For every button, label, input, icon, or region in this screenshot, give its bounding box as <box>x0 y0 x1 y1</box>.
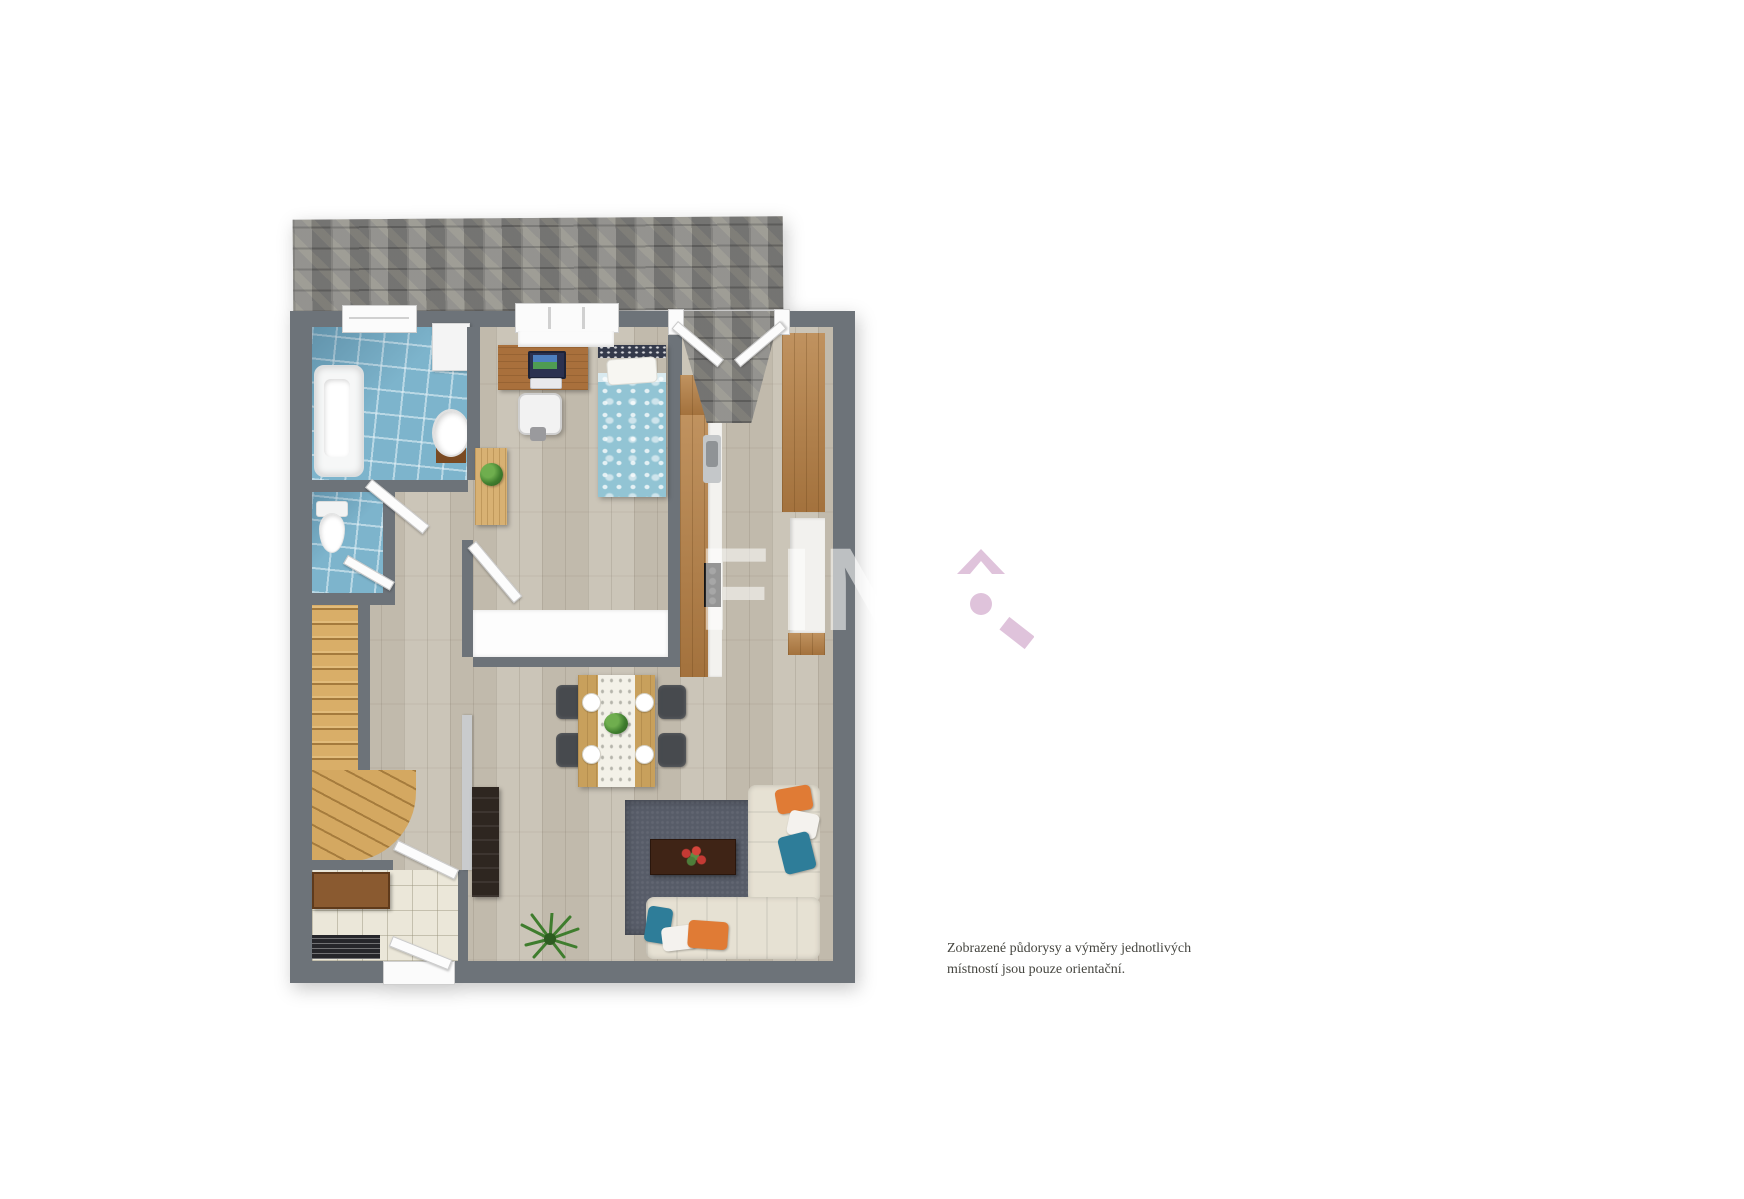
bathroom-cabinet <box>432 323 470 371</box>
bedroom-window <box>515 303 619 333</box>
dining-centerpiece <box>604 713 628 734</box>
dining-plate-3 <box>635 693 654 712</box>
bathroom-window-mullion <box>349 317 409 319</box>
wall-stairs-right <box>358 605 370 770</box>
outer-wall-bottom <box>290 961 855 983</box>
chevron-up-icon <box>957 549 1005 574</box>
disclaimer-line-1: Zobrazené půdorysy a výměry jednotlivých <box>947 938 1207 959</box>
dining-chair-3 <box>658 685 686 719</box>
staircase <box>312 605 358 775</box>
wall-hall-dining <box>462 540 473 657</box>
kitchen-sink <box>703 435 721 483</box>
wall-under-stairs <box>312 860 393 870</box>
dining-plate-2 <box>582 745 601 764</box>
pillow-orange-2 <box>687 920 729 951</box>
outer-wall-left <box>290 311 312 983</box>
brand-logo <box>950 542 1034 650</box>
sink-bowl <box>706 441 718 467</box>
desk-chair-base <box>530 427 546 441</box>
disclaimer-line-2: místností jsou pouze orientační. <box>947 959 1207 980</box>
bed-duvet <box>598 373 666 497</box>
bathroom-window <box>342 305 417 333</box>
page-canvas: FIN Zobrazené půdorysy a výměry jednotli… <box>0 0 1744 1199</box>
bedroom-sideboard <box>475 448 507 525</box>
disclaimer-text: Zobrazené půdorysy a výměry jednotlivých… <box>947 938 1207 980</box>
palm-plant <box>518 913 582 961</box>
desk-monitor <box>528 351 566 379</box>
washbasin <box>432 409 470 457</box>
watermark-text: FIN <box>698 522 918 658</box>
bed <box>598 345 666 497</box>
coffee-table-flowers <box>676 843 710 869</box>
dining-chair-4 <box>658 733 686 767</box>
dot-icon <box>970 593 992 615</box>
bathtub-basin <box>324 379 350 457</box>
wall-bathroom-bottom <box>312 480 468 492</box>
wall-wc-bottom <box>312 593 395 605</box>
radiator <box>312 935 380 959</box>
bed-pillow <box>606 356 658 385</box>
kitchen-wardrobe <box>782 333 825 512</box>
tv-wall <box>462 715 472 870</box>
desk-keyboard <box>530 378 562 389</box>
bedroom-window-mullion-1 <box>548 307 551 329</box>
dining-plate-1 <box>582 693 601 712</box>
dining-plate-4 <box>635 745 654 764</box>
bedroom-window-mullion-2 <box>582 307 585 329</box>
bathtub <box>314 365 364 477</box>
monitor-screen <box>533 355 557 369</box>
tv-cabinet <box>472 787 499 897</box>
sideboard-plant <box>480 463 503 486</box>
wall-entrance-right <box>458 870 468 961</box>
roof-shingles <box>293 216 784 312</box>
diagonal-bar-icon <box>999 617 1034 649</box>
wall-bedroom-bottom <box>473 610 668 657</box>
entrance-bench <box>312 872 390 909</box>
bedroom-window-sill <box>518 331 614 347</box>
wall-bedroom-bottom-edge <box>473 657 668 667</box>
